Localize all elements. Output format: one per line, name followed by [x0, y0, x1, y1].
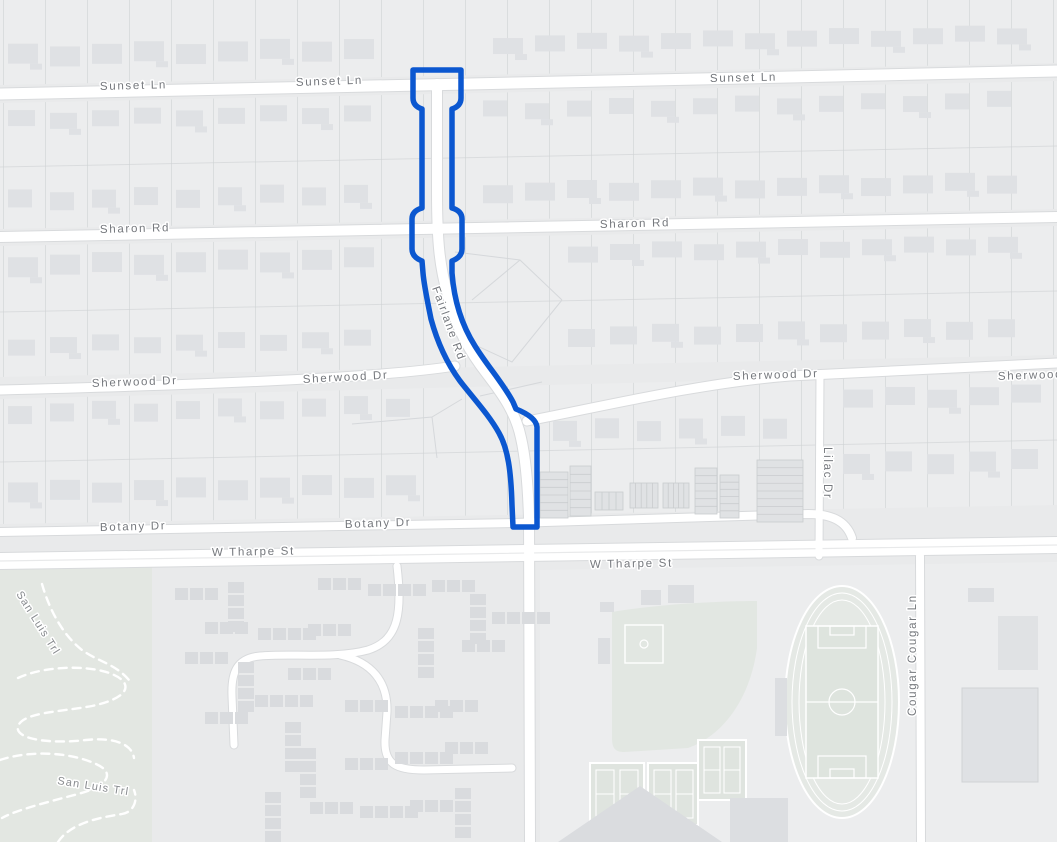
street-label-sherwood-dr-e2: Sherwood Dr [998, 368, 1057, 383]
street-label-cougar-ln: Cougar Cougar Ln [907, 594, 919, 716]
street-label-sharon-rd-east: Sharon Rd [600, 217, 671, 231]
map-canvas[interactable]: Sunset Ln Sunset Ln Sunset Ln Sharon Rd … [0, 0, 1057, 842]
street-label-lilac-dr: Lilac Dr [821, 447, 833, 500]
street-label-botany-dr-east: Botany Dr [345, 517, 412, 531]
map-viewport[interactable]: Sunset Ln Sunset Ln Sunset Ln Sharon Rd … [0, 0, 1057, 842]
street-label-w-tharpe-st-east: W Tharpe St [590, 558, 673, 571]
street-label-botany-dr-west: Botany Dr [100, 520, 167, 534]
street-label-sharon-rd-west: Sharon Rd [100, 222, 171, 236]
street-label-sunset-ln-east: Sunset Ln [710, 72, 777, 85]
street-label-sunset-ln-center: Sunset Ln [296, 75, 363, 89]
street-label-w-tharpe-st-west: W Tharpe St [212, 546, 295, 559]
street-label-sunset-ln-west: Sunset Ln [100, 79, 167, 93]
